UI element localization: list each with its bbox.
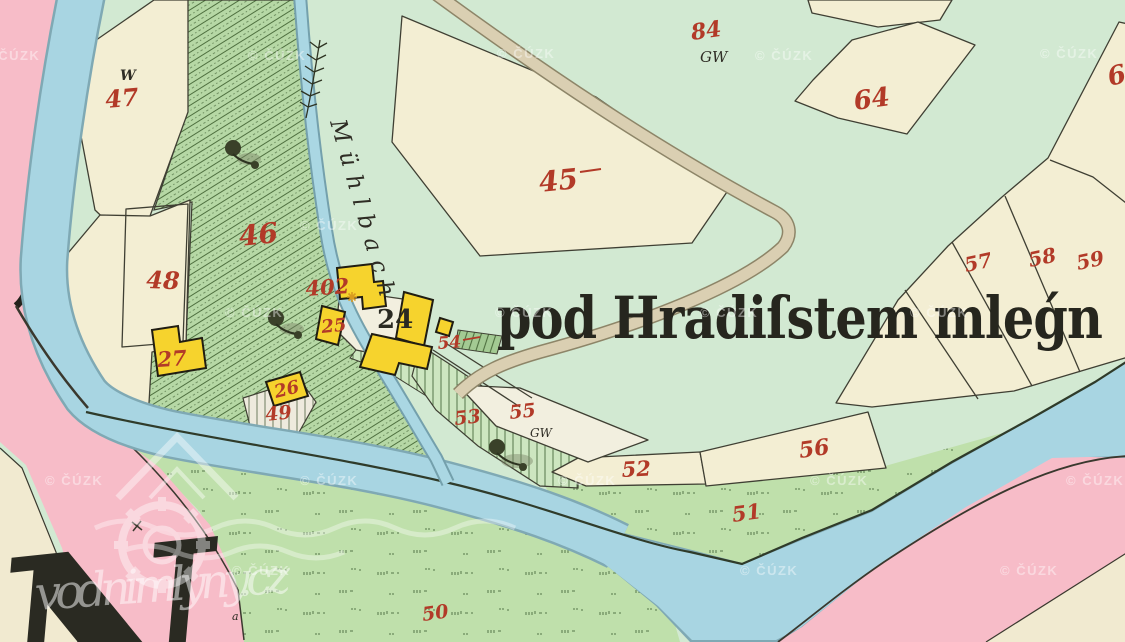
watermark-cuzk: © ČÚZK bbox=[700, 305, 758, 320]
label-49: 49 bbox=[264, 401, 293, 426]
watermark-cuzk: © ČÚZK bbox=[300, 218, 358, 233]
label-64: 64 bbox=[852, 82, 892, 117]
label-marker-a: a bbox=[232, 610, 239, 623]
label-54: 54 bbox=[437, 332, 462, 354]
label-50: 50 bbox=[421, 600, 450, 625]
label-46: 46 bbox=[237, 216, 279, 253]
label-47: 47 bbox=[104, 82, 140, 114]
label-48: 48 bbox=[146, 265, 181, 295]
label-w: W bbox=[120, 68, 137, 84]
watermark-cuzk: © ČÚZK bbox=[300, 473, 358, 488]
label-51: 51 bbox=[730, 498, 762, 527]
watermark-cuzk: © ČÚZK bbox=[558, 473, 616, 488]
label-24: 24 bbox=[377, 305, 413, 335]
cadastral-map: 47 W 84 GW 64 6 45 46 48 402 24 25 54 27… bbox=[0, 0, 1125, 642]
watermark-cuzk: © ČÚZK bbox=[1000, 563, 1058, 578]
label-55: 55 bbox=[508, 399, 537, 424]
label-gw-lower: GW bbox=[530, 426, 554, 440]
label-402: 402 bbox=[305, 273, 350, 301]
label-84: 84 bbox=[688, 16, 723, 46]
watermark-cuzk: © ČÚZK bbox=[0, 48, 40, 63]
map-canvas: 47 W 84 GW 64 6 45 46 48 402 24 25 54 27… bbox=[0, 0, 1125, 642]
watermark-cuzk: © ČÚZK bbox=[740, 563, 798, 578]
watermark-cuzk: © ČÚZK bbox=[225, 305, 283, 320]
watermark-cuzk: © ČÚZK bbox=[755, 48, 813, 63]
label-25: 25 bbox=[319, 314, 347, 338]
watermark-cuzk: © ČÚZK bbox=[45, 473, 103, 488]
watermark-cuzk: © ČÚZK bbox=[497, 46, 555, 61]
watermark-cuzk: © ČÚZK bbox=[810, 473, 868, 488]
label-53: 53 bbox=[453, 405, 482, 430]
watermark-cuzk: © ČÚZK bbox=[1066, 473, 1124, 488]
label-56: 56 bbox=[797, 434, 831, 464]
place-name-title: pod Hradiſstem mleǵn bbox=[497, 284, 1102, 352]
watermark-cuzk: © ČÚZK bbox=[1040, 46, 1098, 61]
label-27: 27 bbox=[156, 345, 188, 372]
watermark-cuzk: © ČÚZK bbox=[248, 48, 306, 63]
label-45: 45 bbox=[537, 162, 579, 199]
watermark-cuzk: © ČÚZK bbox=[495, 305, 553, 320]
watermark-cuzk: © ČÚZK bbox=[910, 305, 968, 320]
label-52: 52 bbox=[621, 455, 652, 481]
label-gw-upper: GW bbox=[700, 48, 729, 66]
